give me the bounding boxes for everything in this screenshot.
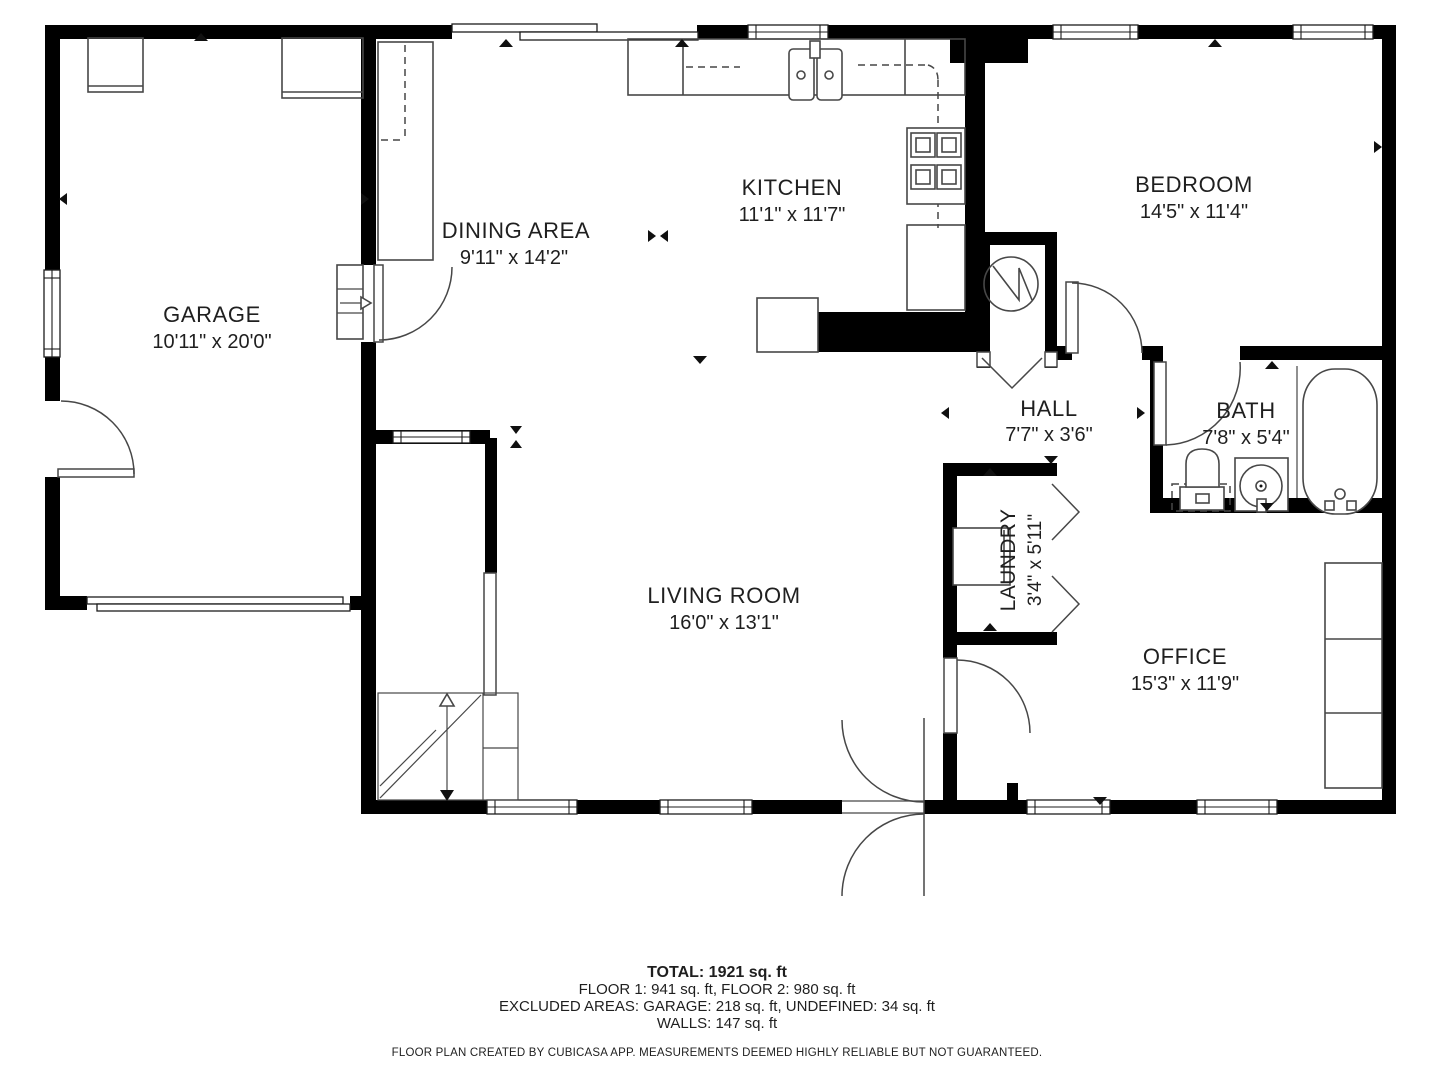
kitchen-counter-right [907,225,965,310]
kitchen-sink-icon [789,41,842,100]
bathtub-icon [1297,366,1377,514]
kitchen-label: KITCHEN [742,175,843,200]
garage-to-dining-door [337,265,452,342]
kitchen-window [748,25,828,39]
bath-label: BATH [1216,398,1275,423]
garage-cabinets [88,38,363,98]
walls [45,25,1396,814]
garage-label: GARAGE [163,302,261,327]
hall-label: HALL [1020,396,1077,421]
office-door [944,658,1030,733]
garage-dims: 10'11" x 20'0" [152,331,271,353]
summary-disclaimer: FLOOR PLAN CREATED BY CUBICASA APP. MEAS… [392,1047,1043,1059]
kitchen-dims: 11'1" x 11'7" [739,204,846,226]
laundry-label-group: LAUNDRY 3'4" x 5'11" [997,509,1046,612]
garage-left-window [44,270,60,357]
living-dims: 16'0" x 13'1" [669,612,779,634]
water-heater-icon [984,257,1038,311]
windows [44,24,1373,814]
dining-counter [378,42,433,260]
office-shelf-icon [1325,563,1382,788]
living-window-right [660,800,752,814]
garage-sectional-door [87,597,350,611]
stove-icon [907,128,965,204]
bedroom-window-left [1053,25,1138,39]
bath-dims: 7'8" x 5'4" [1202,427,1289,449]
water-heater-closet-door [977,352,1057,388]
laundry-bifold-doors [1052,484,1079,632]
laundry-dims: 3'4" x 5'11" [1025,514,1046,606]
floor-plan-canvas: GARAGE 10'11" x 20'0" DINING AREA 9'11" … [0,0,1440,1080]
room-labels: GARAGE 10'11" x 20'0" DINING AREA 9'11" … [152,172,1289,695]
bedroom-window-right [1293,25,1373,39]
garage-exterior-door [58,401,134,477]
dining-sliding-window [452,24,698,40]
bedroom-dims: 14'5" x 11'4" [1140,201,1248,223]
laundry-label: LAUNDRY [997,509,1020,612]
kitchen-cabinet-lower-left [757,298,818,352]
summary-block: TOTAL: 1921 sq. ft FLOOR 1: 941 sq. ft, … [392,964,1043,1059]
bedroom-door [1066,282,1142,353]
toilet-icon [1172,449,1230,511]
stairs-icon [378,693,518,801]
dining-dims: 9'11" x 14'2" [460,247,568,269]
interior-pass-through-window [393,431,470,443]
living-window-left [487,800,577,814]
summary-excluded: EXCLUDED AREAS: GARAGE: 218 sq. ft, UNDE… [499,998,936,1015]
bedroom-label: BEDROOM [1135,172,1253,197]
dining-label: DINING AREA [442,218,590,243]
summary-total: TOTAL: 1921 sq. ft [647,964,788,981]
closet-sliding-door [484,573,496,695]
office-dims: 15'3" x 11'9" [1131,673,1239,695]
living-label: LIVING ROOM [647,583,800,608]
office-window-right [1197,800,1277,814]
summary-walls: WALLS: 147 sq. ft [657,1015,778,1032]
entry-double-swing-door [842,718,924,896]
floor-plan-page: GARAGE 10'11" x 20'0" DINING AREA 9'11" … [0,0,1440,1080]
summary-floors: FLOOR 1: 941 sq. ft, FLOOR 2: 980 sq. ft [579,981,857,998]
office-label: OFFICE [1143,644,1227,669]
hall-dims: 7'7" x 3'6" [1005,424,1092,446]
